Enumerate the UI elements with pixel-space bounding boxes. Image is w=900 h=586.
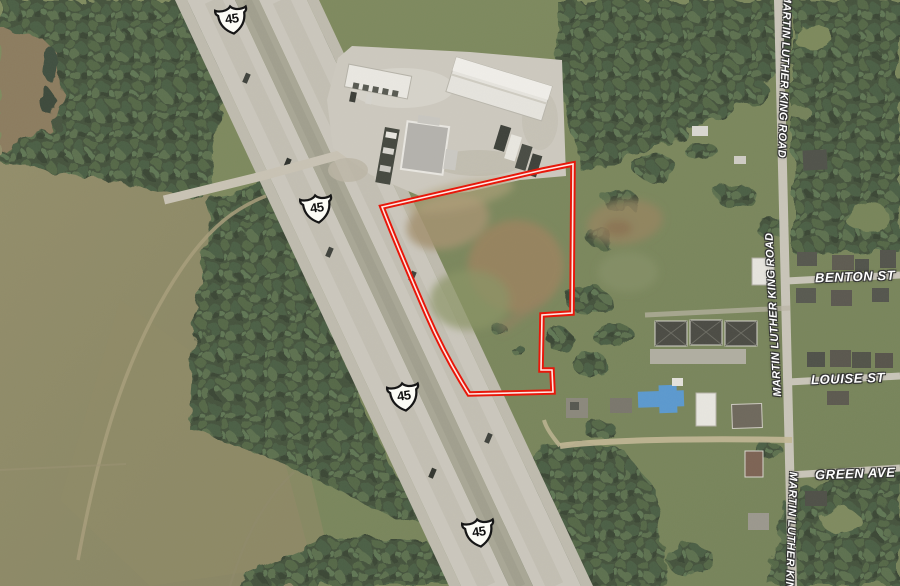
us-route-45-shield: 45 [213, 2, 251, 38]
road-label-benton-st: BENTON ST [815, 269, 896, 286]
aerial-imagery [0, 0, 900, 586]
imagery-grain [0, 0, 900, 586]
us-route-45-shield: 45 [460, 515, 498, 551]
road-label-green-ave: GREEN AVE [815, 466, 896, 483]
road-label-louise-st: LOUISE ST [811, 371, 885, 388]
us-route-45-shield: 45 [385, 379, 423, 415]
us-route-45-shield: 45 [298, 191, 336, 227]
aerial-map-view: 45 45 45 45 MARTIN LUTHER KING ROAD MART… [0, 0, 900, 586]
